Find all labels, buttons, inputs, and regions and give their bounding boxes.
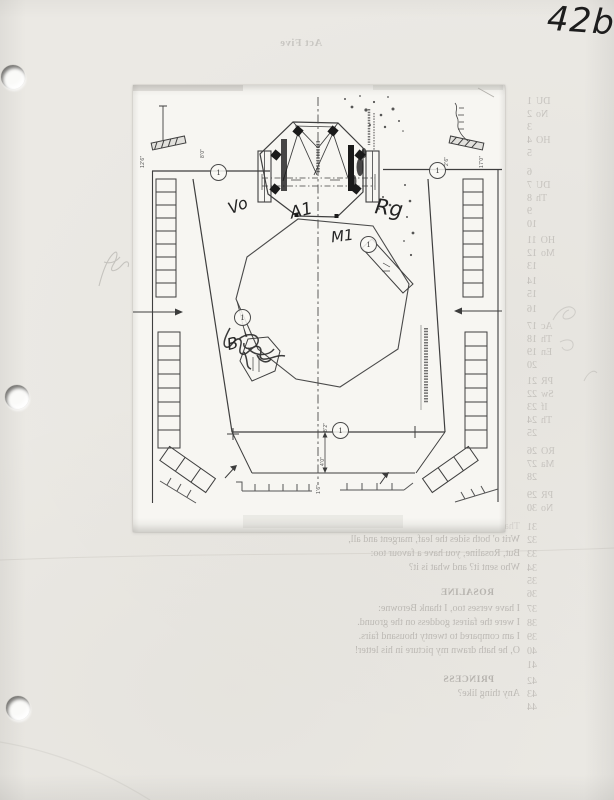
bleed-line-number: 33 [527,549,571,560]
bleed-line-number: 6 [527,167,571,178]
bleed-line-number: 34 [527,563,571,574]
bleed-line-number: 40 [527,646,571,657]
punch-hole [5,385,29,409]
bleed-line-number: Ma27 [527,459,571,470]
bleed-line-number: If23 [527,402,571,413]
bleed-line-number: Th18 [527,334,571,345]
bleed-line-number: 32 [527,535,571,546]
bleed-script-line: I am compared to twenty thousand fairs. [359,631,520,642]
seating-ladder-upper-right [463,179,483,297]
bleed-line-number: RO26 [527,446,571,457]
bleed-script-line: I have verses too, I thank Berowne: [378,603,520,614]
bleed-line-number: 38 [527,618,571,629]
bleed-line-number: No30 [527,503,571,514]
bleed-line-number: 10 [527,219,571,230]
bleed-line-number: 35 [527,576,571,587]
bleed-script-line: I were the fairest goddess on the ground… [357,617,520,628]
bleed-line-number: Th24 [527,415,571,426]
bleed-line-number: PR21 [527,376,571,387]
bleed-line-number: Sw22 [527,389,571,400]
hatched-bar-left [151,136,186,150]
bleed-line-number: 20 [527,360,571,371]
bleed-line-number: 15 [527,289,571,300]
stage-platform-outline [236,219,409,387]
bleed-line-number: 44 [527,702,571,713]
bleed-script-line: But, Rosaline, you have a favour too: [371,548,520,559]
punch-hole [6,696,30,720]
seating-ladder-lower-right [465,332,487,448]
bleed-speaker-heading: PRINCESS [443,675,520,685]
seating-ladder-lower-left [158,332,180,448]
bleed-script-line: Writ o' both sides the leaf, margent and… [348,534,520,545]
bleed-line-number: 3 [527,122,571,133]
arrowheads [175,308,462,479]
bleed-script-line: Who sent it? and what is it? [409,562,520,573]
bleed-speaker-heading: ROSALINE [440,588,520,598]
bleed-line-numbers: DU1No23HO456DU7Th8910HO11Mo1213141516Ac1… [527,0,571,800]
bleed-line-number: 43 [527,689,571,700]
bleed-line-number: No2 [527,109,571,120]
bleed-line-number: 41 [527,660,571,671]
bleed-line-number: Th8 [527,193,571,204]
bleed-line-number: En19 [527,347,571,358]
photocopy-sheet [133,85,505,532]
bleed-script-line: O, he hath drawn my picture in his lette… [355,645,520,656]
paper-crease [0,742,150,800]
bleed-line-number: 42 [527,676,571,687]
seating-ladder-upper-left [156,179,176,297]
bleed-script-line: Any thing like? [458,688,520,699]
bleed-line-number: DU1 [527,96,571,107]
bleed-line-number: DU7 [527,180,571,191]
bleed-line-number: 5 [527,148,571,159]
punch-hole [1,65,25,89]
bleed-line-number: 37 [527,604,571,615]
bleed-line-number: Ac17 [527,321,571,332]
bleed-line-number: 31 [527,522,571,533]
bleed-line-number: 28 [527,472,571,483]
hatched-bar-right [449,136,484,150]
bleed-line-number: HO11 [527,235,571,246]
bleed-line-number: 13 [527,261,571,272]
bleed-line-number: 25 [527,428,571,439]
scanned-page: 42b Act Five DU1No23HO456DU7Th8910HO11Mo… [0,0,614,800]
stage-plan-drawing [133,85,505,532]
bleed-line-number: HO4 [527,135,571,146]
bleed-line-number: 39 [527,632,571,643]
bleed-line-number: 16 [527,304,571,315]
bleed-line-number: PR29 [527,490,571,501]
bleed-line-number: 36 [527,589,571,600]
bleed-line-number: 9 [527,206,571,217]
corner-seat-blocks-right [423,446,479,492]
pencil-scribble [99,252,129,286]
bleed-line-number: 14 [527,276,571,287]
bleed-line-number: Mo12 [527,248,571,259]
bench-outline [362,239,413,293]
